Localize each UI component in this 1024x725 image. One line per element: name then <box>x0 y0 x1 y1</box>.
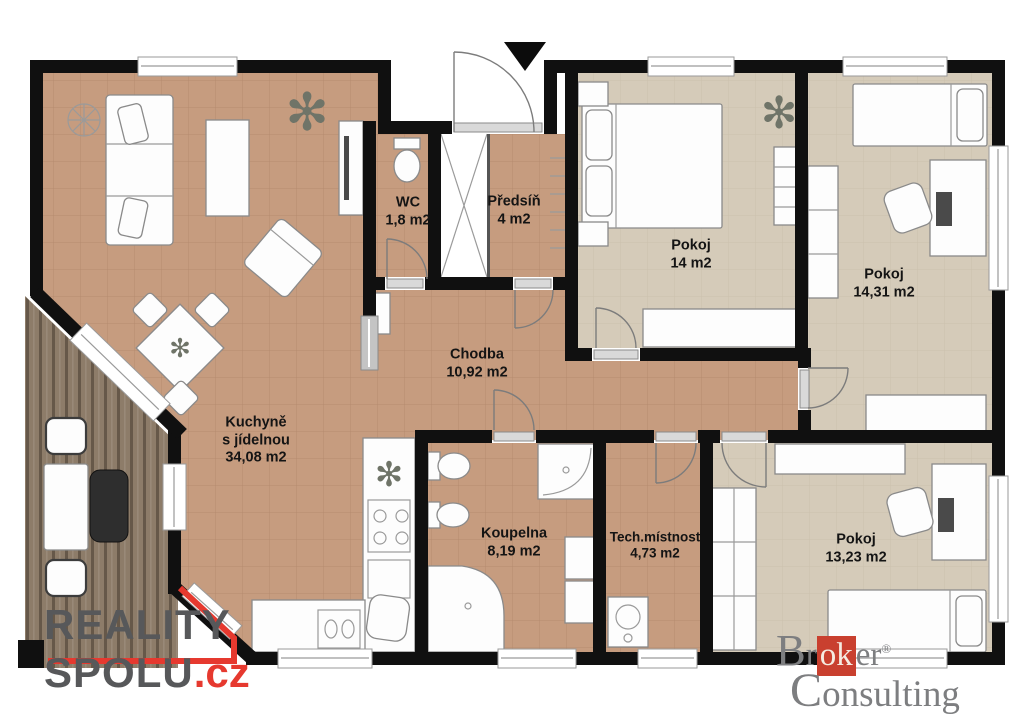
room-label-predsin: Předsíň4 m2 <box>487 193 540 228</box>
computer-icon <box>938 498 954 532</box>
pillow <box>957 89 983 141</box>
terrace-chair <box>46 560 86 596</box>
sideboard <box>643 309 797 347</box>
bathroom-cabinet <box>565 537 596 579</box>
logo-word-reality: REALITY <box>44 604 250 646</box>
toilet <box>394 150 420 182</box>
pokoj2-door <box>800 370 809 408</box>
pokoj1-door <box>594 350 638 359</box>
predsin-door <box>515 279 551 288</box>
sink-icon: ✻ <box>375 455 404 495</box>
tv-icon <box>344 136 349 200</box>
pokoj3-door <box>722 432 766 441</box>
logo-word-spolu: SPOLU.cz <box>44 652 250 694</box>
plant-icon: ✻ <box>285 83 329 143</box>
terrace-chair <box>46 418 86 454</box>
kitchen-chair <box>365 593 411 642</box>
room-label-koupelna: Koupelna8,19 m2 <box>481 525 547 560</box>
logo-tld: .cz <box>194 649 250 696</box>
terrace-lounge-chair <box>90 470 128 542</box>
bidet <box>437 503 469 527</box>
bathroom-cabinet <box>565 581 596 623</box>
nightstand <box>578 82 608 106</box>
room-label-kuchyne: Kuchyněs jídelnou34,08 m2 <box>222 414 290 467</box>
wc-door <box>387 279 423 288</box>
floorplan-page: ✻ ✻ ✻ ✻ <box>0 0 1024 725</box>
room-label-tech: Tech.místnost4,73 m2 <box>610 530 701 563</box>
room-label-pokoj1: Pokoj14 m2 <box>670 237 711 272</box>
plant-icon: ✻ <box>169 334 191 364</box>
pillow <box>956 596 982 646</box>
terrace-table <box>44 464 88 550</box>
pillow <box>586 166 612 216</box>
sideboard <box>775 444 905 474</box>
tv-cabinet <box>339 121 363 215</box>
logo-word-consulting: Consulting <box>790 669 960 712</box>
room-label-pokoj2: Pokoj14,31 m2 <box>853 266 914 301</box>
toilet-tank <box>394 138 420 149</box>
broker-consulting-logo: Broker® Consulting <box>776 630 960 712</box>
plant-icon: ✻ <box>761 88 798 139</box>
koupelna-door <box>494 432 534 441</box>
reality-spolu-logo: REALITY SPOLU.cz <box>44 604 250 694</box>
coffee-table <box>206 120 249 216</box>
computer-icon <box>936 192 952 226</box>
room-label-pokoj3: Pokoj13,23 m2 <box>825 531 886 566</box>
tech-door <box>656 432 696 441</box>
pillow <box>586 110 612 160</box>
daybed <box>866 395 986 436</box>
entry-door <box>454 123 542 132</box>
room-label-chodba: Chodba10,92 m2 <box>446 346 507 381</box>
nightstand <box>578 222 608 246</box>
registered-mark: ® <box>881 641 891 656</box>
toilet <box>438 453 470 479</box>
wardrobe <box>808 166 838 298</box>
room-label-wc: WC1,8 m2 <box>385 194 430 229</box>
